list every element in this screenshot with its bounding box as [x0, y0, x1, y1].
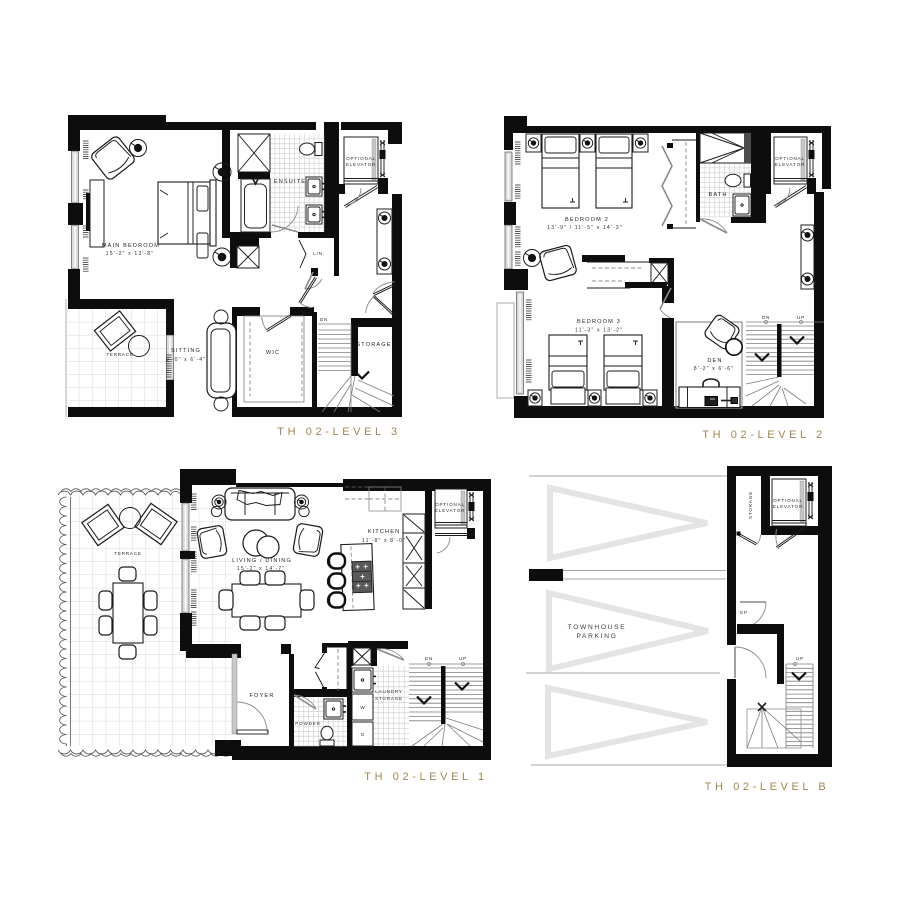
svg-text:TH 02-LEVEL 2: TH 02-LEVEL 2 [702, 429, 825, 441]
svg-text:15'-2" x 13'-8": 15'-2" x 13'-8" [106, 251, 154, 257]
svg-text:OPTIONAL: OPTIONAL [773, 498, 803, 503]
svg-text:STORAGE: STORAGE [356, 342, 391, 348]
svg-text:EP: EP [740, 610, 748, 615]
svg-text:D: D [361, 732, 365, 737]
svg-text:FOYER: FOYER [249, 693, 274, 699]
svg-text:UP: UP [797, 315, 805, 320]
svg-text:BEDROOM 2: BEDROOM 2 [565, 217, 609, 223]
svg-text:TH 02-LEVEL 1: TH 02-LEVEL 1 [364, 771, 487, 783]
svg-text:BATH: BATH [708, 192, 727, 198]
svg-text:BEDROOM 3: BEDROOM 3 [577, 319, 621, 325]
svg-text:TERRACE: TERRACE [106, 352, 134, 357]
svg-text:TH 02-LEVEL B: TH 02-LEVEL B [705, 781, 830, 793]
svg-text:W: W [360, 705, 365, 710]
svg-text:DN: DN [425, 656, 433, 661]
svg-text:OPTIONAL: OPTIONAL [346, 156, 376, 161]
svg-text:WIC: WIC [266, 350, 280, 356]
svg-text:KITCHEN: KITCHEN [368, 529, 401, 535]
svg-text:ELEVATOR: ELEVATOR [346, 162, 376, 167]
svg-text:TERRACE: TERRACE [114, 551, 142, 556]
svg-text:STORAGE: STORAGE [375, 696, 403, 701]
svg-text:OPTIONAL: OPTIONAL [775, 156, 805, 161]
svg-text:OPTIONAL: OPTIONAL [435, 502, 465, 507]
svg-text:LAUNDRY: LAUNDRY [375, 689, 402, 694]
svg-text:8'-2" x 6'-6": 8'-2" x 6'-6" [694, 366, 734, 372]
svg-text:UP: UP [796, 656, 804, 661]
svg-text:MAIN BEDROOM: MAIN BEDROOM [102, 243, 160, 249]
svg-text:ENSUITE: ENSUITE [274, 179, 306, 185]
svg-text:TOWNHOUSE: TOWNHOUSE [568, 624, 627, 631]
svg-text:TH 02-LEVEL 3: TH 02-LEVEL 3 [277, 426, 400, 438]
svg-text:POWDER: POWDER [295, 721, 320, 726]
svg-text:11'-3" x 13'-2": 11'-3" x 13'-2" [575, 328, 623, 334]
svg-text:13'-9" / 11'-5" x 14'-3": 13'-9" / 11'-5" x 14'-3" [547, 225, 622, 231]
svg-text:LIVING / DINING: LIVING / DINING [232, 558, 292, 564]
svg-text:STORAGE: STORAGE [748, 491, 753, 519]
svg-text:ELEVATOR: ELEVATOR [435, 508, 465, 513]
svg-text:DN: DN [320, 317, 328, 322]
svg-text:LIN.: LIN. [313, 251, 325, 256]
svg-text:11'-8" x 8'-0": 11'-8" x 8'-0" [362, 538, 406, 544]
svg-text:ELEVATOR: ELEVATOR [773, 504, 803, 509]
svg-text:DN: DN [762, 315, 770, 320]
svg-text:UP: UP [459, 656, 467, 661]
svg-text:SITTING: SITTING [171, 348, 201, 354]
svg-text:ELEVATOR: ELEVATOR [775, 162, 805, 167]
svg-text:DEN: DEN [707, 358, 722, 364]
svg-text:9'-0" x 6'-4": 9'-0" x 6'-4" [166, 357, 206, 363]
svg-text:PARKING: PARKING [576, 633, 617, 640]
